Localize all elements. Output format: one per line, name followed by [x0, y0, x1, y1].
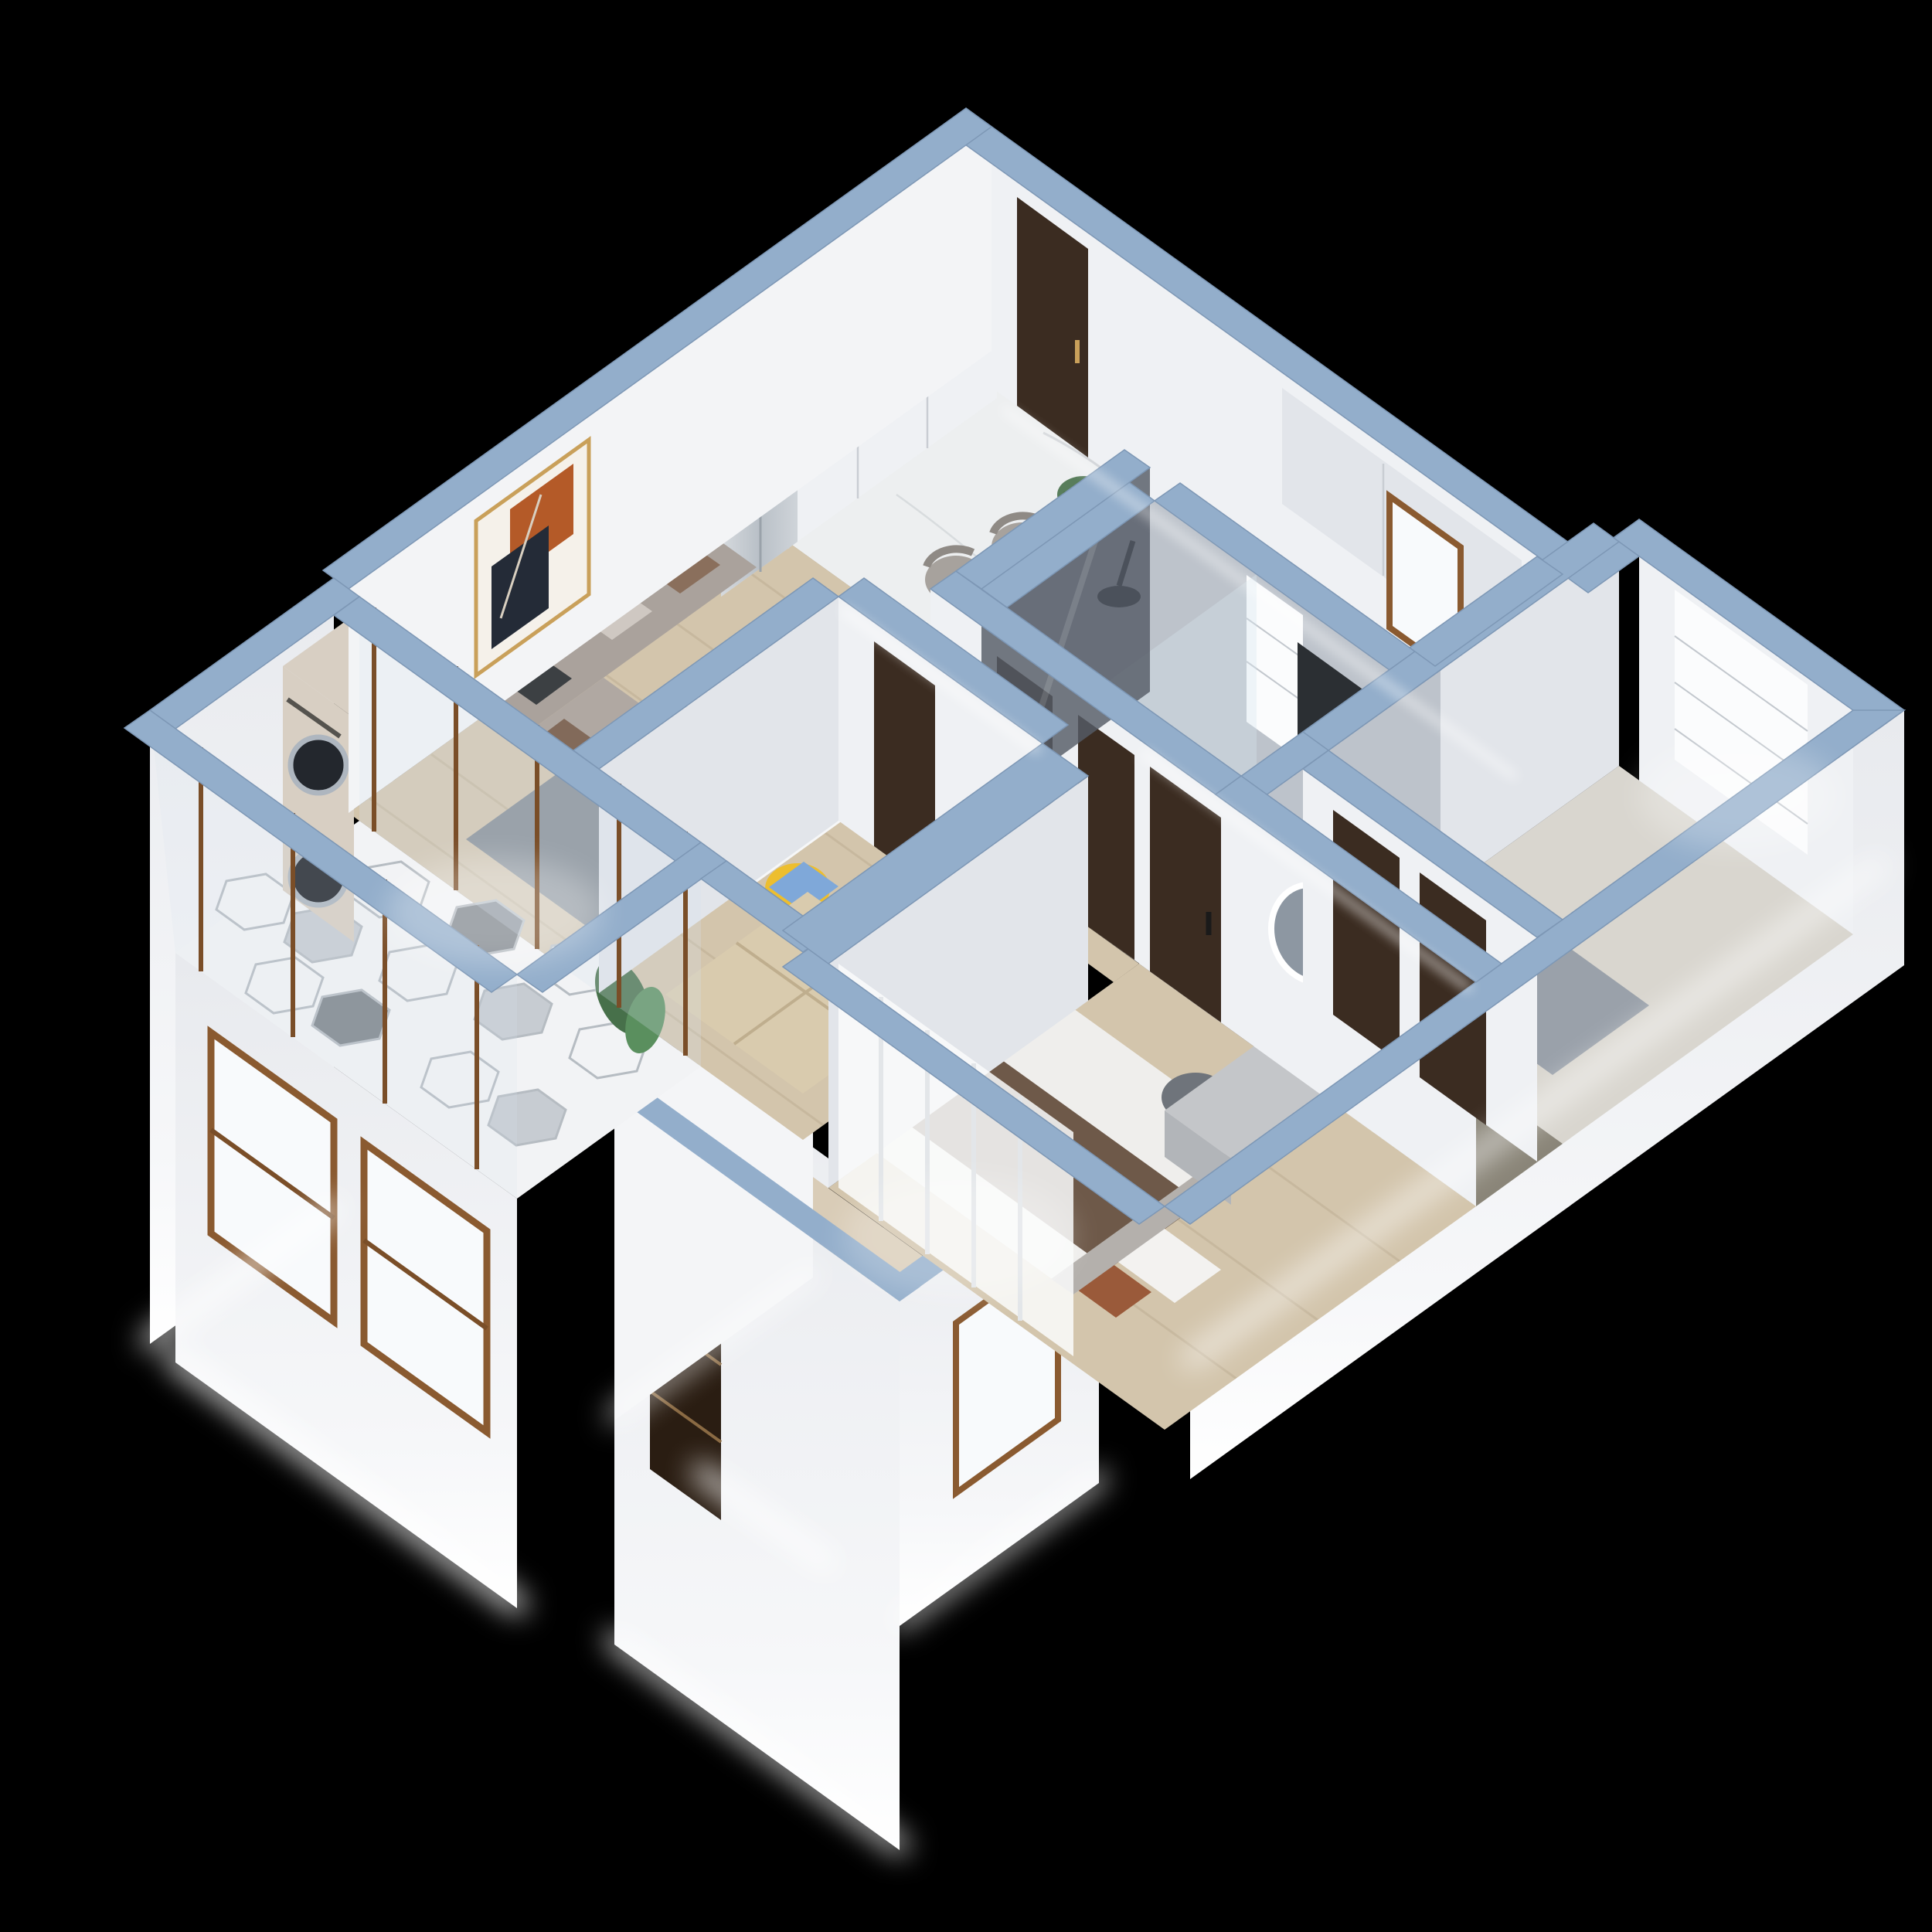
light-pool-bedroom2: [1638, 742, 1839, 850]
apartment-3d-render: [0, 0, 1932, 1932]
light-pool-master: [842, 1175, 1074, 1298]
dryer-drum: [291, 737, 346, 793]
render-canvas: [0, 0, 1932, 1932]
light-pool-balcony: [386, 858, 603, 966]
